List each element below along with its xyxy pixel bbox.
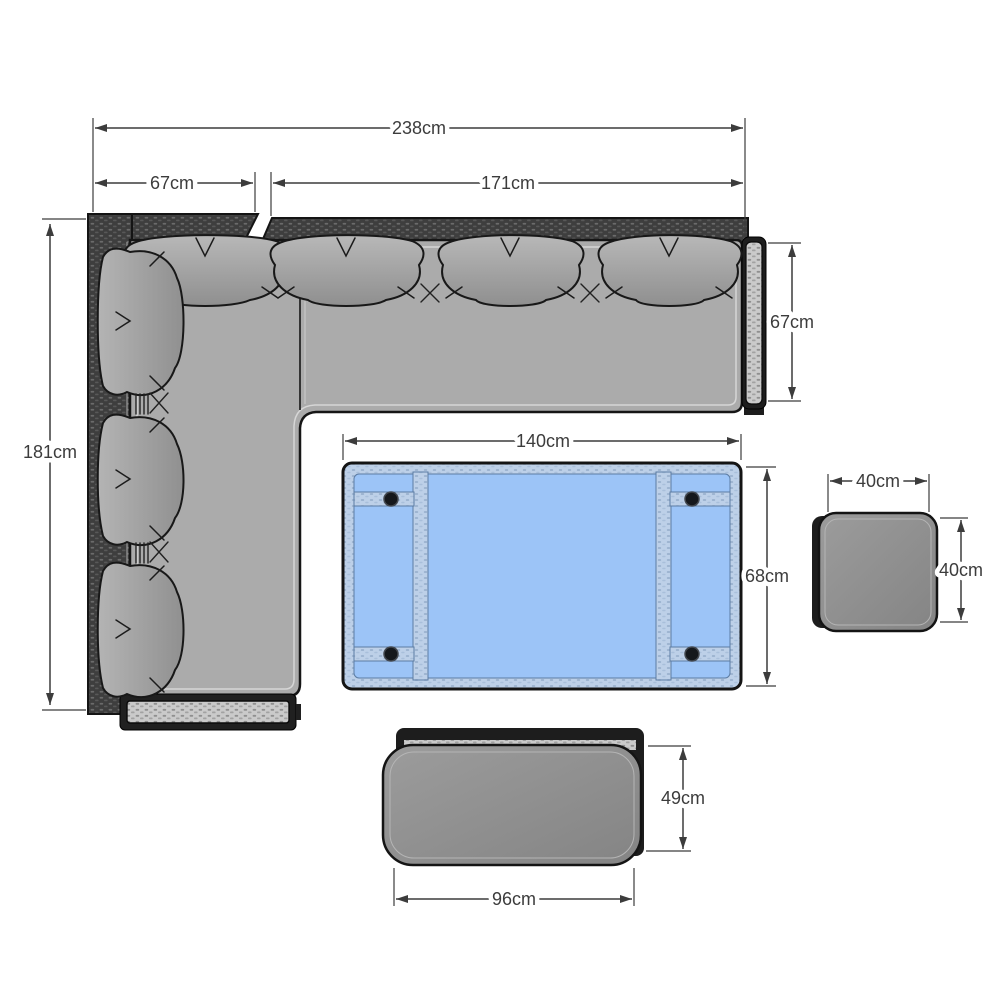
side-pillow-1 bbox=[98, 249, 184, 395]
dimension-label: 67cm bbox=[770, 312, 814, 332]
dimension-sofa-right-section-width: 171cm bbox=[271, 172, 743, 216]
back-pillow-4 bbox=[599, 235, 742, 306]
stool-cushion bbox=[819, 513, 937, 631]
dimension-sofa-left-depth: 181cm bbox=[23, 219, 86, 710]
dimension-label: 40cm bbox=[939, 560, 983, 580]
dimension-label: 67cm bbox=[150, 173, 194, 193]
bench-cushion bbox=[383, 745, 641, 865]
side-pillow-3 bbox=[98, 563, 184, 697]
side-pillow-2 bbox=[98, 415, 184, 545]
dimension-label: 49cm bbox=[661, 788, 705, 808]
dimension-sofa-right-depth: 67cm bbox=[768, 243, 814, 401]
dimension-label: 181cm bbox=[23, 442, 77, 462]
sofa-side-pillows bbox=[98, 249, 184, 697]
back-pillow-3 bbox=[439, 235, 584, 306]
dimension-table-depth: 68cm bbox=[745, 467, 789, 686]
dining-table bbox=[343, 463, 741, 689]
dimension-label: 238cm bbox=[392, 118, 446, 138]
table-rail-left bbox=[413, 472, 428, 680]
diagram-canvas: 238cm 67cm 171cm 181cm 67cm bbox=[0, 0, 1000, 1000]
dimension-stool-depth: 40cm bbox=[939, 518, 983, 622]
table-stretcher-bottom-right bbox=[670, 647, 730, 661]
dimension-table-width: 140cm bbox=[343, 431, 741, 460]
table-stretcher-top-right bbox=[670, 492, 730, 506]
dimension-stool-width: 40cm bbox=[828, 471, 929, 512]
dimension-label: 96cm bbox=[492, 889, 536, 909]
dimension-label: 140cm bbox=[516, 431, 570, 451]
dimension-bench-depth: 49cm bbox=[646, 746, 705, 851]
sofa-bottom-armrest bbox=[120, 694, 301, 730]
stool bbox=[812, 513, 937, 631]
dimension-label: 171cm bbox=[481, 173, 535, 193]
dimension-label: 40cm bbox=[856, 471, 900, 491]
dimension-label: 68cm bbox=[745, 566, 789, 586]
table-rail-right bbox=[656, 472, 671, 680]
dimension-diagram: 238cm 67cm 171cm 181cm 67cm bbox=[0, 0, 1000, 1000]
bench bbox=[383, 728, 644, 865]
dimension-sofa-left-arm-width: 67cm bbox=[95, 172, 255, 212]
sofa-right-armrest bbox=[742, 237, 766, 415]
dimension-bench-width: 96cm bbox=[394, 868, 634, 909]
back-pillow-2 bbox=[271, 235, 424, 306]
